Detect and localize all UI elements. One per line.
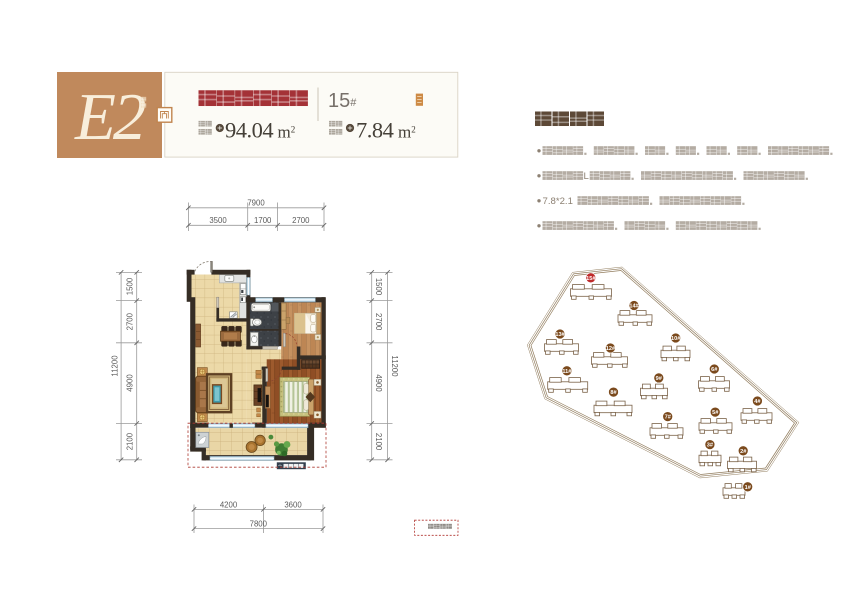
svg-text:7#: 7# [665,415,672,421]
svg-text:11200: 11200 [111,355,120,377]
svg-text:11#: 11# [562,369,572,375]
svg-text:4900: 4900 [374,374,383,392]
svg-text:2700: 2700 [374,313,383,331]
svg-text:5#: 5# [712,410,719,416]
svg-text:6#: 6# [711,367,718,373]
svg-text:7900: 7900 [247,199,265,208]
svg-text:9#: 9# [656,376,663,382]
svg-text:3600: 3600 [284,500,302,509]
svg-text:L: L [584,171,590,182]
svg-text:2#: 2# [740,449,747,455]
svg-text:2700: 2700 [126,312,135,330]
svg-text:1700: 1700 [254,216,272,225]
svg-text:11200: 11200 [390,355,399,377]
svg-text:94.04: 94.04 [225,118,273,143]
svg-text:2700: 2700 [292,216,310,225]
svg-text:2100: 2100 [126,432,135,450]
svg-text:7.84: 7.84 [356,118,394,143]
svg-text:8#: 8# [610,390,617,396]
svg-text:2100: 2100 [374,433,383,451]
svg-text:4900: 4900 [126,374,135,392]
svg-text:1#: 1# [745,485,752,491]
svg-text:14#: 14# [629,304,639,310]
svg-text:7.8*2.1: 7.8*2.1 [543,196,573,207]
svg-text:4200: 4200 [220,500,238,509]
svg-text:3#: 3# [707,443,714,449]
svg-text:E2: E2 [74,80,146,154]
svg-text:15#: 15# [586,276,596,282]
svg-text:1500: 1500 [374,278,383,296]
svg-text:7800: 7800 [250,519,268,528]
svg-text:13#: 13# [555,332,565,338]
svg-text:4#: 4# [754,399,761,405]
svg-text:10#: 10# [671,336,681,342]
svg-text:1500: 1500 [126,277,135,295]
svg-text:3500: 3500 [209,216,227,225]
svg-text:12#: 12# [606,346,616,352]
